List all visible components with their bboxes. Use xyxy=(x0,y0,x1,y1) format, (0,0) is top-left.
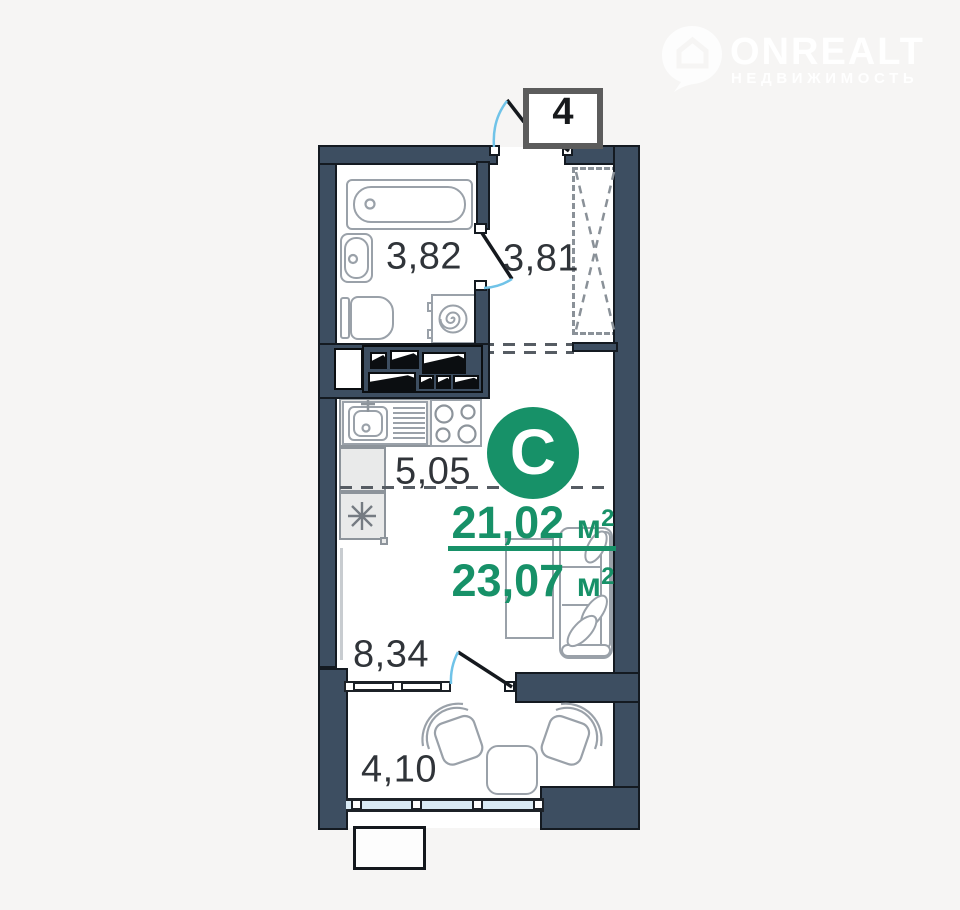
vent-shaft xyxy=(362,345,483,393)
plumbing-riser xyxy=(334,348,363,390)
brand-name: ONREALT xyxy=(730,31,925,74)
area-living-label: 21,02 м2 xyxy=(433,500,633,545)
zone-divider-dash xyxy=(482,343,574,346)
lower-balcony-outline xyxy=(353,826,426,870)
stove xyxy=(430,399,482,447)
brand-tagline: НЕДВИЖИМОСТЬ xyxy=(731,70,918,87)
wall-right xyxy=(613,145,640,830)
wall-balcony-bottom-right xyxy=(540,786,640,830)
entry-door-post xyxy=(489,145,500,156)
area-total-label: 23,07 м2 xyxy=(433,558,633,603)
sofa-armrest xyxy=(561,644,611,657)
bathtub-inner xyxy=(353,186,466,223)
kitchen-zone-dash xyxy=(340,486,613,489)
zone-divider-dash xyxy=(482,351,574,354)
bathroom-sink-inner xyxy=(344,237,369,279)
bath-door-post xyxy=(474,280,487,291)
toilet xyxy=(350,296,394,340)
wall-bathroom-upper xyxy=(476,161,490,230)
area-divider-line xyxy=(448,546,616,551)
bath-door-post xyxy=(474,223,487,234)
wall-top-left xyxy=(318,145,498,165)
door-swing-arc xyxy=(494,101,507,147)
apartment-type-badge: С xyxy=(487,407,579,499)
logo-pin-house-icon xyxy=(660,24,724,94)
fridge xyxy=(339,492,386,540)
room-label-living: 8,34 xyxy=(353,634,429,677)
room-label-balcony: 4,10 xyxy=(361,749,437,792)
unit-number-badge: 4 xyxy=(523,88,603,149)
washing-machine xyxy=(431,294,476,344)
toilet-tank xyxy=(340,297,350,339)
wall-face-line xyxy=(340,548,343,660)
room-label-hallway: 3,81 xyxy=(503,238,579,281)
kitchen-sink-bowl xyxy=(353,410,383,437)
wall-wardrobe-stub xyxy=(572,342,618,352)
balcony-window xyxy=(346,798,544,812)
room-label-kitchen: 5,05 xyxy=(395,451,471,494)
balcony-door-post xyxy=(504,681,515,692)
wall-left-lower xyxy=(318,668,348,830)
wall-left xyxy=(318,145,337,668)
wall-balcony-jut xyxy=(515,672,640,703)
balcony-table xyxy=(486,745,538,795)
cabinet-handle xyxy=(380,537,388,545)
room-label-bathroom: 3,82 xyxy=(386,236,462,279)
